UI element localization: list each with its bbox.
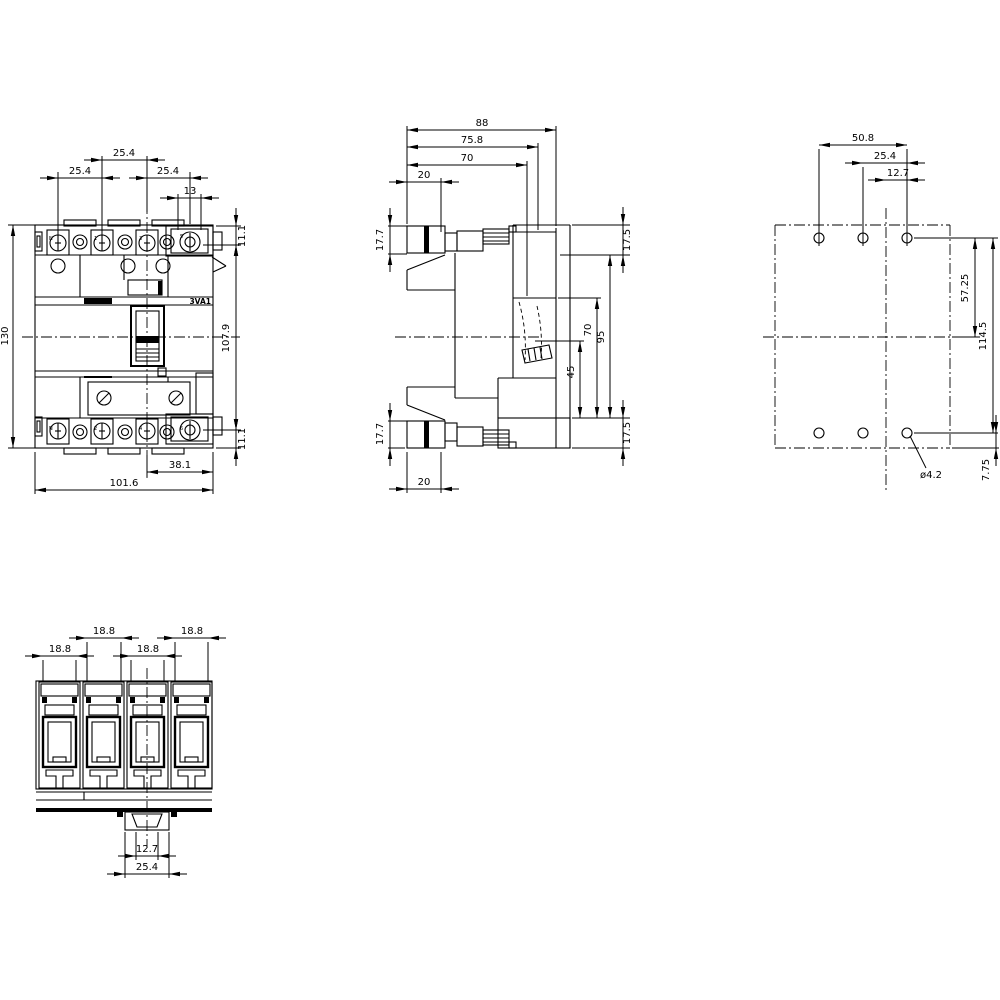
technical-drawing-svg: 3VA1 N 1 3 5 N 2 4 6 25.4 25.4 [0,0,1000,1000]
pole-label-bottom-2: 2 [94,426,97,432]
front-top-terminals [47,226,226,272]
pole-module-4 [171,682,212,788]
pole-label-bottom-1: N [49,426,53,432]
pole-module-3 [127,682,168,788]
dim-bottom-tab-inner-width: 12.7 [136,844,158,855]
dimension-drawing: 3VA1 N 1 3 5 N 2 4 6 25.4 25.4 [0,0,1000,1000]
dim-side-terminal-height-top: 17.7 [375,229,386,251]
dim-bottom-slot-pole1: 18.8 [49,644,71,655]
side-dimensions: 88 75.8 70 20 17.7 17.5 9 [375,118,633,493]
dim-side-overall-depth: 88 [476,118,489,129]
pole-label-top-1: N [49,236,53,242]
pole-label-bottom-4: 6 [180,426,183,432]
dim-side-bottom-section: 17.5 [622,422,633,444]
dim-front-overall-width: 101.6 [110,478,139,489]
dim-side-top-section: 17.5 [622,229,633,251]
bottom-dimensions: 18.8 18.8 18.8 18.8 12.7 [25,626,226,878]
dim-rear-hole-offset: 12.7 [887,168,909,179]
pole-module-2 [83,682,124,788]
mounting-hole [858,428,868,438]
dim-front-pitch-2-3: 25.4 [113,148,135,159]
pole-label-top-4: 5 [180,234,183,240]
dim-side-terminal-height-bottom: 17.7 [375,423,386,445]
rear-view: 50.8 25.4 12.7 57.25 114.5 7.75 ø4.2 [763,133,999,492]
dim-rear-center-to-hole-row: 57.25 [960,274,971,303]
front-view: 3VA1 N 1 3 5 N 2 4 6 25.4 25.4 [0,148,248,494]
dim-rear-bottom-edge-offset: 7.75 [981,459,992,481]
dim-front-center-to-edge: 38.1 [169,460,191,471]
dim-bottom-slot-pole3: 18.8 [137,644,159,655]
dim-bottom-slot-pole4: 18.8 [181,626,203,637]
dim-front-pitch-1-2: 25.4 [69,166,91,177]
pole-label-top-3: 3 [139,236,142,242]
dim-rear-hole-span: 50.8 [852,133,874,144]
dim-front-pitch-3-4: 25.4 [157,166,179,177]
bottom-view-outline [36,681,212,830]
dim-side-terminal-depth-top: 20 [418,170,431,181]
front-dimensions: 25.4 25.4 25.4 13 11.1 107.9 [0,148,248,494]
barcode-label [84,298,112,304]
dim-side-depth-front: 70 [461,153,474,164]
dim-side-handle-cutout: 45 [566,366,577,379]
rear-view-outline [763,208,952,492]
dim-side-terminal-depth-bottom: 20 [418,477,431,488]
dim-side-depth-to-mount: 75.8 [461,135,483,146]
dim-side-body-section: 95 [596,331,607,344]
dim-front-bottom-terminal-offset: 11.1 [237,428,248,450]
dim-front-overall-height: 130 [0,326,11,345]
dim-rear-hole-row-span: 114.5 [978,322,989,351]
handle-side-profile [522,345,552,363]
side-view-outline [407,225,570,448]
dim-bottom-slot-pole2: 18.8 [93,626,115,637]
product-label: 3VA1 [189,297,211,306]
dim-front-terminal-span: 107.9 [221,324,232,353]
side-view: 88 75.8 70 20 17.7 17.5 9 [375,118,633,493]
pole-label-top-2: 1 [94,236,97,242]
mounting-hole [814,428,824,438]
pole-module-1 [39,682,80,788]
dim-front-terminal-width: 13 [184,186,197,197]
pole-label-bottom-3: 4 [139,426,142,432]
dim-rear-hole-diameter: ø4.2 [920,470,942,481]
dim-rear-hole-pitch: 25.4 [874,151,896,162]
dim-side-front-recess: 70 [583,324,594,337]
dim-front-top-terminal-offset: 11.1 [237,225,248,247]
bottom-view: 18.8 18.8 18.8 18.8 12.7 [25,626,226,878]
accessory-label-bar [84,376,112,378]
dim-bottom-tab-outer-width: 25.4 [136,862,158,873]
